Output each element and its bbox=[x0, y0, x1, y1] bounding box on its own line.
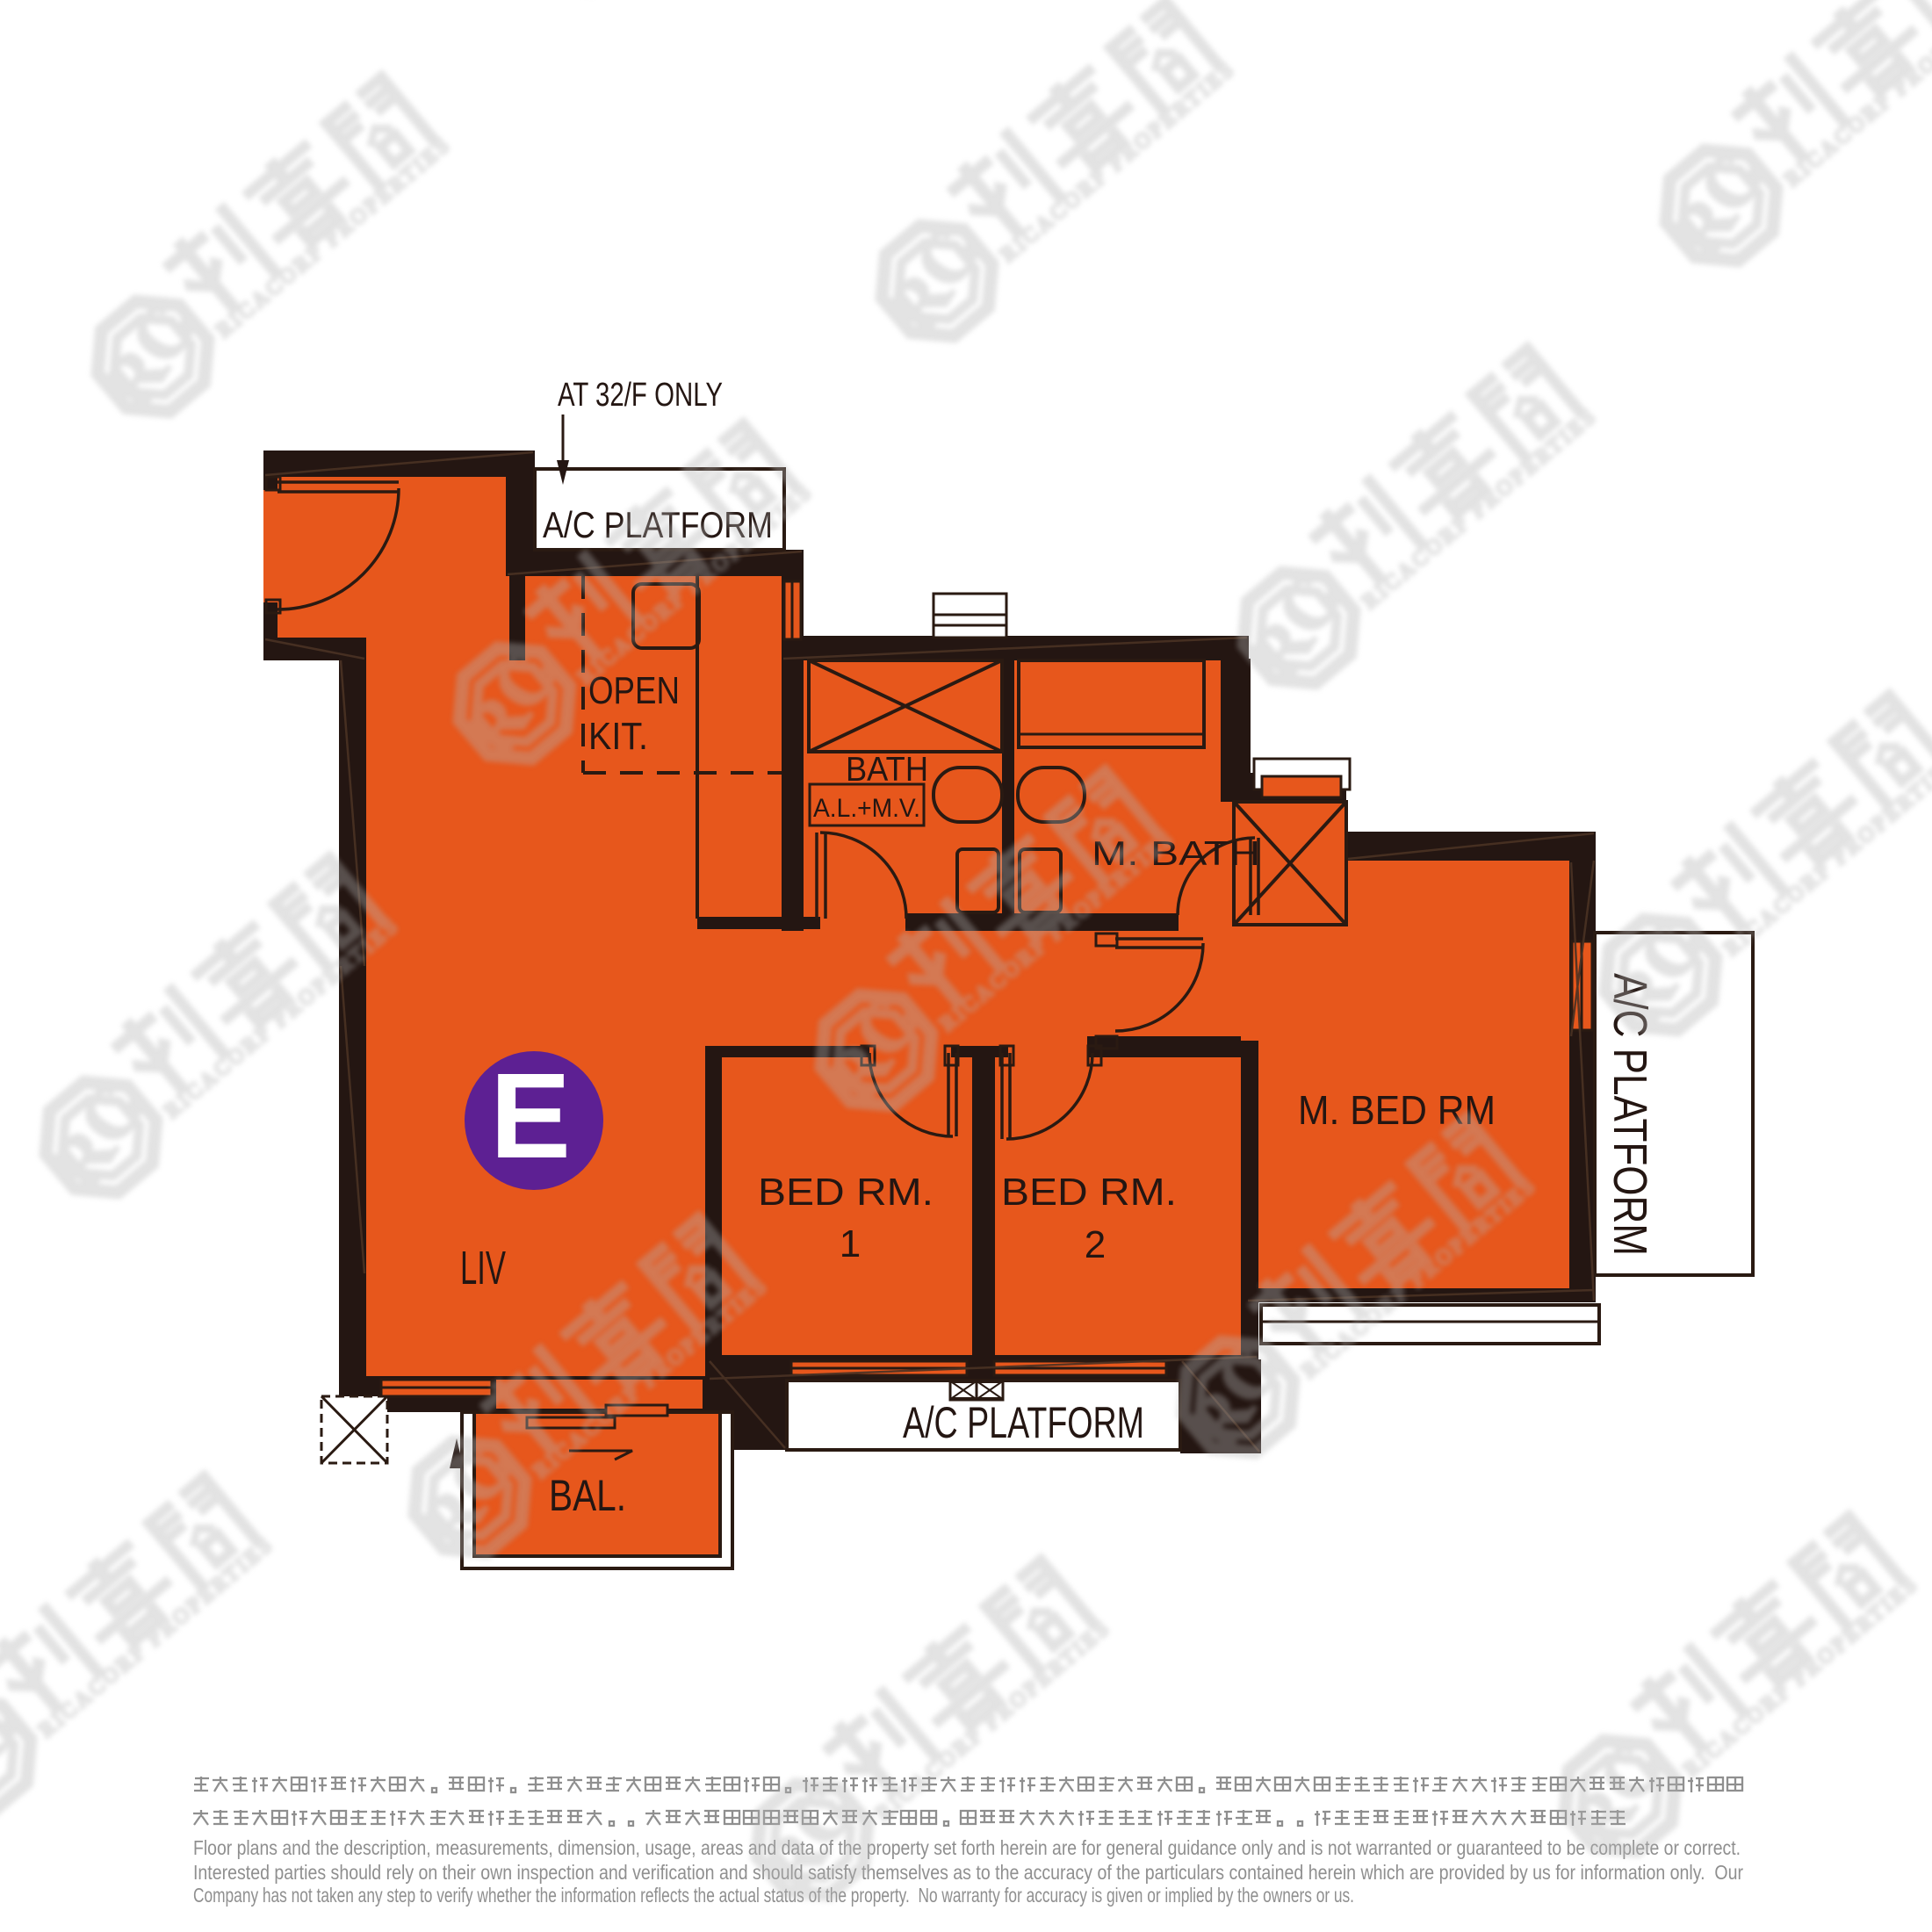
svg-text:BED RM.: BED RM. bbox=[758, 1171, 934, 1214]
svg-text:2: 2 bbox=[1085, 1223, 1106, 1266]
svg-text:Company has not taken any step: Company has not taken any step to verify… bbox=[193, 1884, 1354, 1907]
svg-text:A.L.+M.V.: A.L.+M.V. bbox=[813, 794, 920, 823]
svg-text:BED RM.: BED RM. bbox=[1001, 1171, 1177, 1214]
svg-text:Interested parties should rely: Interested parties should rely on their … bbox=[193, 1861, 1743, 1884]
svg-text:1: 1 bbox=[840, 1222, 861, 1265]
svg-text:A/C PLATFORM: A/C PLATFORM bbox=[903, 1398, 1144, 1447]
svg-text:BAL.: BAL. bbox=[549, 1471, 626, 1520]
svg-text:KIT.: KIT. bbox=[588, 715, 648, 758]
svg-text:Floor plans and the descriptio: Floor plans and the description, measure… bbox=[193, 1836, 1741, 1859]
svg-text:AT 32/F ONLY: AT 32/F ONLY bbox=[558, 377, 723, 414]
svg-text:E: E bbox=[490, 1049, 571, 1184]
svg-text:LIV: LIV bbox=[460, 1242, 506, 1294]
